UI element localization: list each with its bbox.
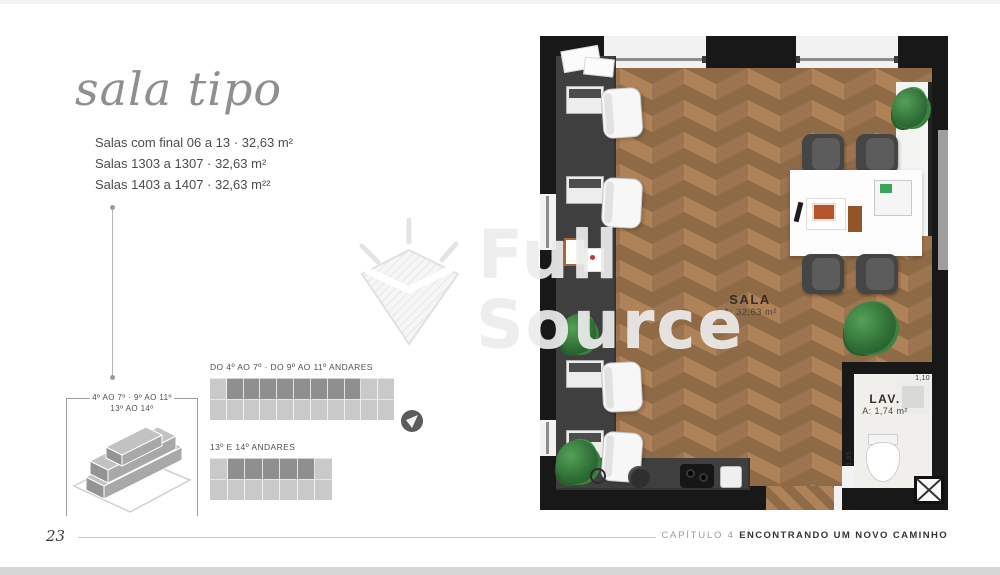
bottom-edge-band xyxy=(0,567,1000,575)
diagram-cell xyxy=(361,378,378,399)
diagram-cell xyxy=(228,479,246,500)
decor-card xyxy=(584,248,604,272)
connector-line xyxy=(112,210,113,375)
table-box xyxy=(848,206,862,232)
diagram-cell xyxy=(311,399,328,420)
diagram-cell xyxy=(263,458,281,479)
lav-area: A: 1,74 m² xyxy=(854,406,916,416)
pointer-icon xyxy=(400,409,424,433)
diagram-cell xyxy=(298,458,316,479)
diagram-cell xyxy=(280,479,298,500)
footer-rule xyxy=(78,537,656,538)
diagram-cell xyxy=(345,378,362,399)
exterior-column-right xyxy=(938,130,948,270)
diagram-cell xyxy=(260,378,277,399)
diagram-cell xyxy=(210,458,228,479)
bracket-right-line xyxy=(197,398,198,516)
diagram-cell xyxy=(378,378,394,399)
kitchen-cooktop-burner-2 xyxy=(699,473,708,482)
lav-name: LAV. xyxy=(854,392,916,406)
table-laptop-sticker xyxy=(880,184,892,193)
spec-line-1: Salas com final 06 a 13 · 32,63 m² xyxy=(95,132,293,153)
decor-wood-frame xyxy=(564,238,586,266)
diagram-cell xyxy=(361,399,378,420)
diagram-cell xyxy=(210,399,227,420)
diagram-cell xyxy=(227,399,244,420)
sala-area: A: 32,63 m² xyxy=(690,307,810,318)
diagram-cell xyxy=(311,378,328,399)
diagram-cell xyxy=(228,458,246,479)
meeting-chair-3 xyxy=(802,254,844,294)
spec-line-2: Salas 1303 a 1307 · 32,63 m² xyxy=(95,153,266,174)
workstation-laptop-3 xyxy=(566,360,604,388)
sala-name: SALA xyxy=(690,292,810,307)
diagram-cell xyxy=(345,399,362,420)
task-chair-1 xyxy=(600,87,643,140)
kitchen-sink-bowl xyxy=(628,466,650,488)
floor-diagram-2-label: 13º E 14º ANDARES xyxy=(210,442,295,452)
table-tray-item xyxy=(812,203,836,221)
building-isometric-icon xyxy=(70,416,194,514)
top-edge-band xyxy=(0,0,1000,4)
wall-top-mid xyxy=(706,36,796,68)
page-title: sala tipo xyxy=(75,62,282,116)
lav-dim-width: 1,10 xyxy=(906,375,930,382)
workstation-laptop-1 xyxy=(566,86,604,114)
door-opening-floor xyxy=(766,486,834,510)
building-key-floors-line2: 13º AO 14º xyxy=(66,403,198,414)
decor-card-flower xyxy=(590,255,595,260)
floor-diagram-1-label: DO 4º AO 7º · DO 9º AO 11º ANDARES xyxy=(210,362,373,372)
spec-line-3: Salas 1403 a 1407 · 32,63 m²² xyxy=(95,174,271,195)
diagram-cell xyxy=(245,458,263,479)
kitchen-cooktop xyxy=(680,464,714,488)
diagram-cell xyxy=(227,378,244,399)
kitchen-appliance xyxy=(720,466,742,488)
diagram-cell xyxy=(210,378,227,399)
desk-papers-2 xyxy=(583,56,615,77)
shaft-icon xyxy=(914,476,944,504)
page-number: 23 xyxy=(46,527,65,545)
diagram-cell xyxy=(315,458,332,479)
diagram-cell xyxy=(378,399,394,420)
sala-label: SALA A: 32,63 m² xyxy=(690,292,810,318)
bracket-left-line xyxy=(66,398,67,516)
task-chair-2 xyxy=(601,177,644,229)
diagram-cell xyxy=(280,458,298,479)
meeting-chair-1 xyxy=(802,134,844,174)
workstation-laptop-2 xyxy=(566,176,604,204)
diagram-cell xyxy=(294,378,311,399)
window-top-2-glass xyxy=(798,58,896,61)
window-left-1-glass xyxy=(546,196,549,248)
diagram-cell xyxy=(210,479,228,500)
diagram-cell xyxy=(277,399,294,420)
window-left-2-glass xyxy=(546,422,549,454)
lav-dim-height: 1,65 xyxy=(846,451,853,466)
brochure-page: sala tipo Salas com final 06 a 13 · 32,6… xyxy=(0,0,1000,575)
diagram-cell xyxy=(328,378,345,399)
floor-diagram-1 xyxy=(210,378,394,420)
task-chair-3 xyxy=(601,361,644,413)
diagram-cell xyxy=(245,479,263,500)
footer-chapter: CAPÍTULO 4 ENCONTRANDO UM NOVO CAMINHO xyxy=(661,530,948,541)
diagram-cell xyxy=(298,479,316,500)
floor-diagram-2 xyxy=(210,458,332,500)
lav-door-opening xyxy=(842,466,854,488)
meeting-chair-2 xyxy=(856,134,898,174)
building-key-floors-line1: 4º AO 7º · 9º AO 11º xyxy=(66,392,198,403)
kitchen-ring xyxy=(590,468,606,484)
diagram-cell xyxy=(260,399,277,420)
wall-right xyxy=(932,36,948,510)
lav-label: LAV. A: 1,74 m² xyxy=(854,392,916,416)
kitchen-cooktop-burner-1 xyxy=(686,469,695,478)
chapter-title: ENCONTRANDO UM NOVO CAMINHO xyxy=(739,530,948,541)
diagram-cell xyxy=(315,479,332,500)
building-key: 4º AO 7º · 9º AO 11º 13º AO 14º xyxy=(66,390,198,516)
connector-bottom-dot xyxy=(110,375,115,380)
door-jamb xyxy=(834,486,842,510)
diagram-cell xyxy=(244,378,261,399)
diagram-cell xyxy=(244,399,261,420)
diagram-cell xyxy=(328,399,345,420)
chapter-label: CAPÍTULO 4 xyxy=(661,530,734,541)
window-top-1-glass xyxy=(606,58,704,61)
diagram-cell xyxy=(277,378,294,399)
lav-wall-top xyxy=(842,362,932,374)
floorplan-render: SALA A: 32,63 m² LAV. A: 1,74 m² 1,10 1,… xyxy=(540,36,948,510)
meeting-chair-4 xyxy=(856,254,898,294)
window-sill-right-glass xyxy=(928,82,932,236)
diagram-cell xyxy=(263,479,281,500)
watermark-logo-icon xyxy=(352,212,470,348)
diagram-cell xyxy=(294,399,311,420)
window-top-1 xyxy=(604,36,706,68)
window-top-2 xyxy=(796,36,898,68)
